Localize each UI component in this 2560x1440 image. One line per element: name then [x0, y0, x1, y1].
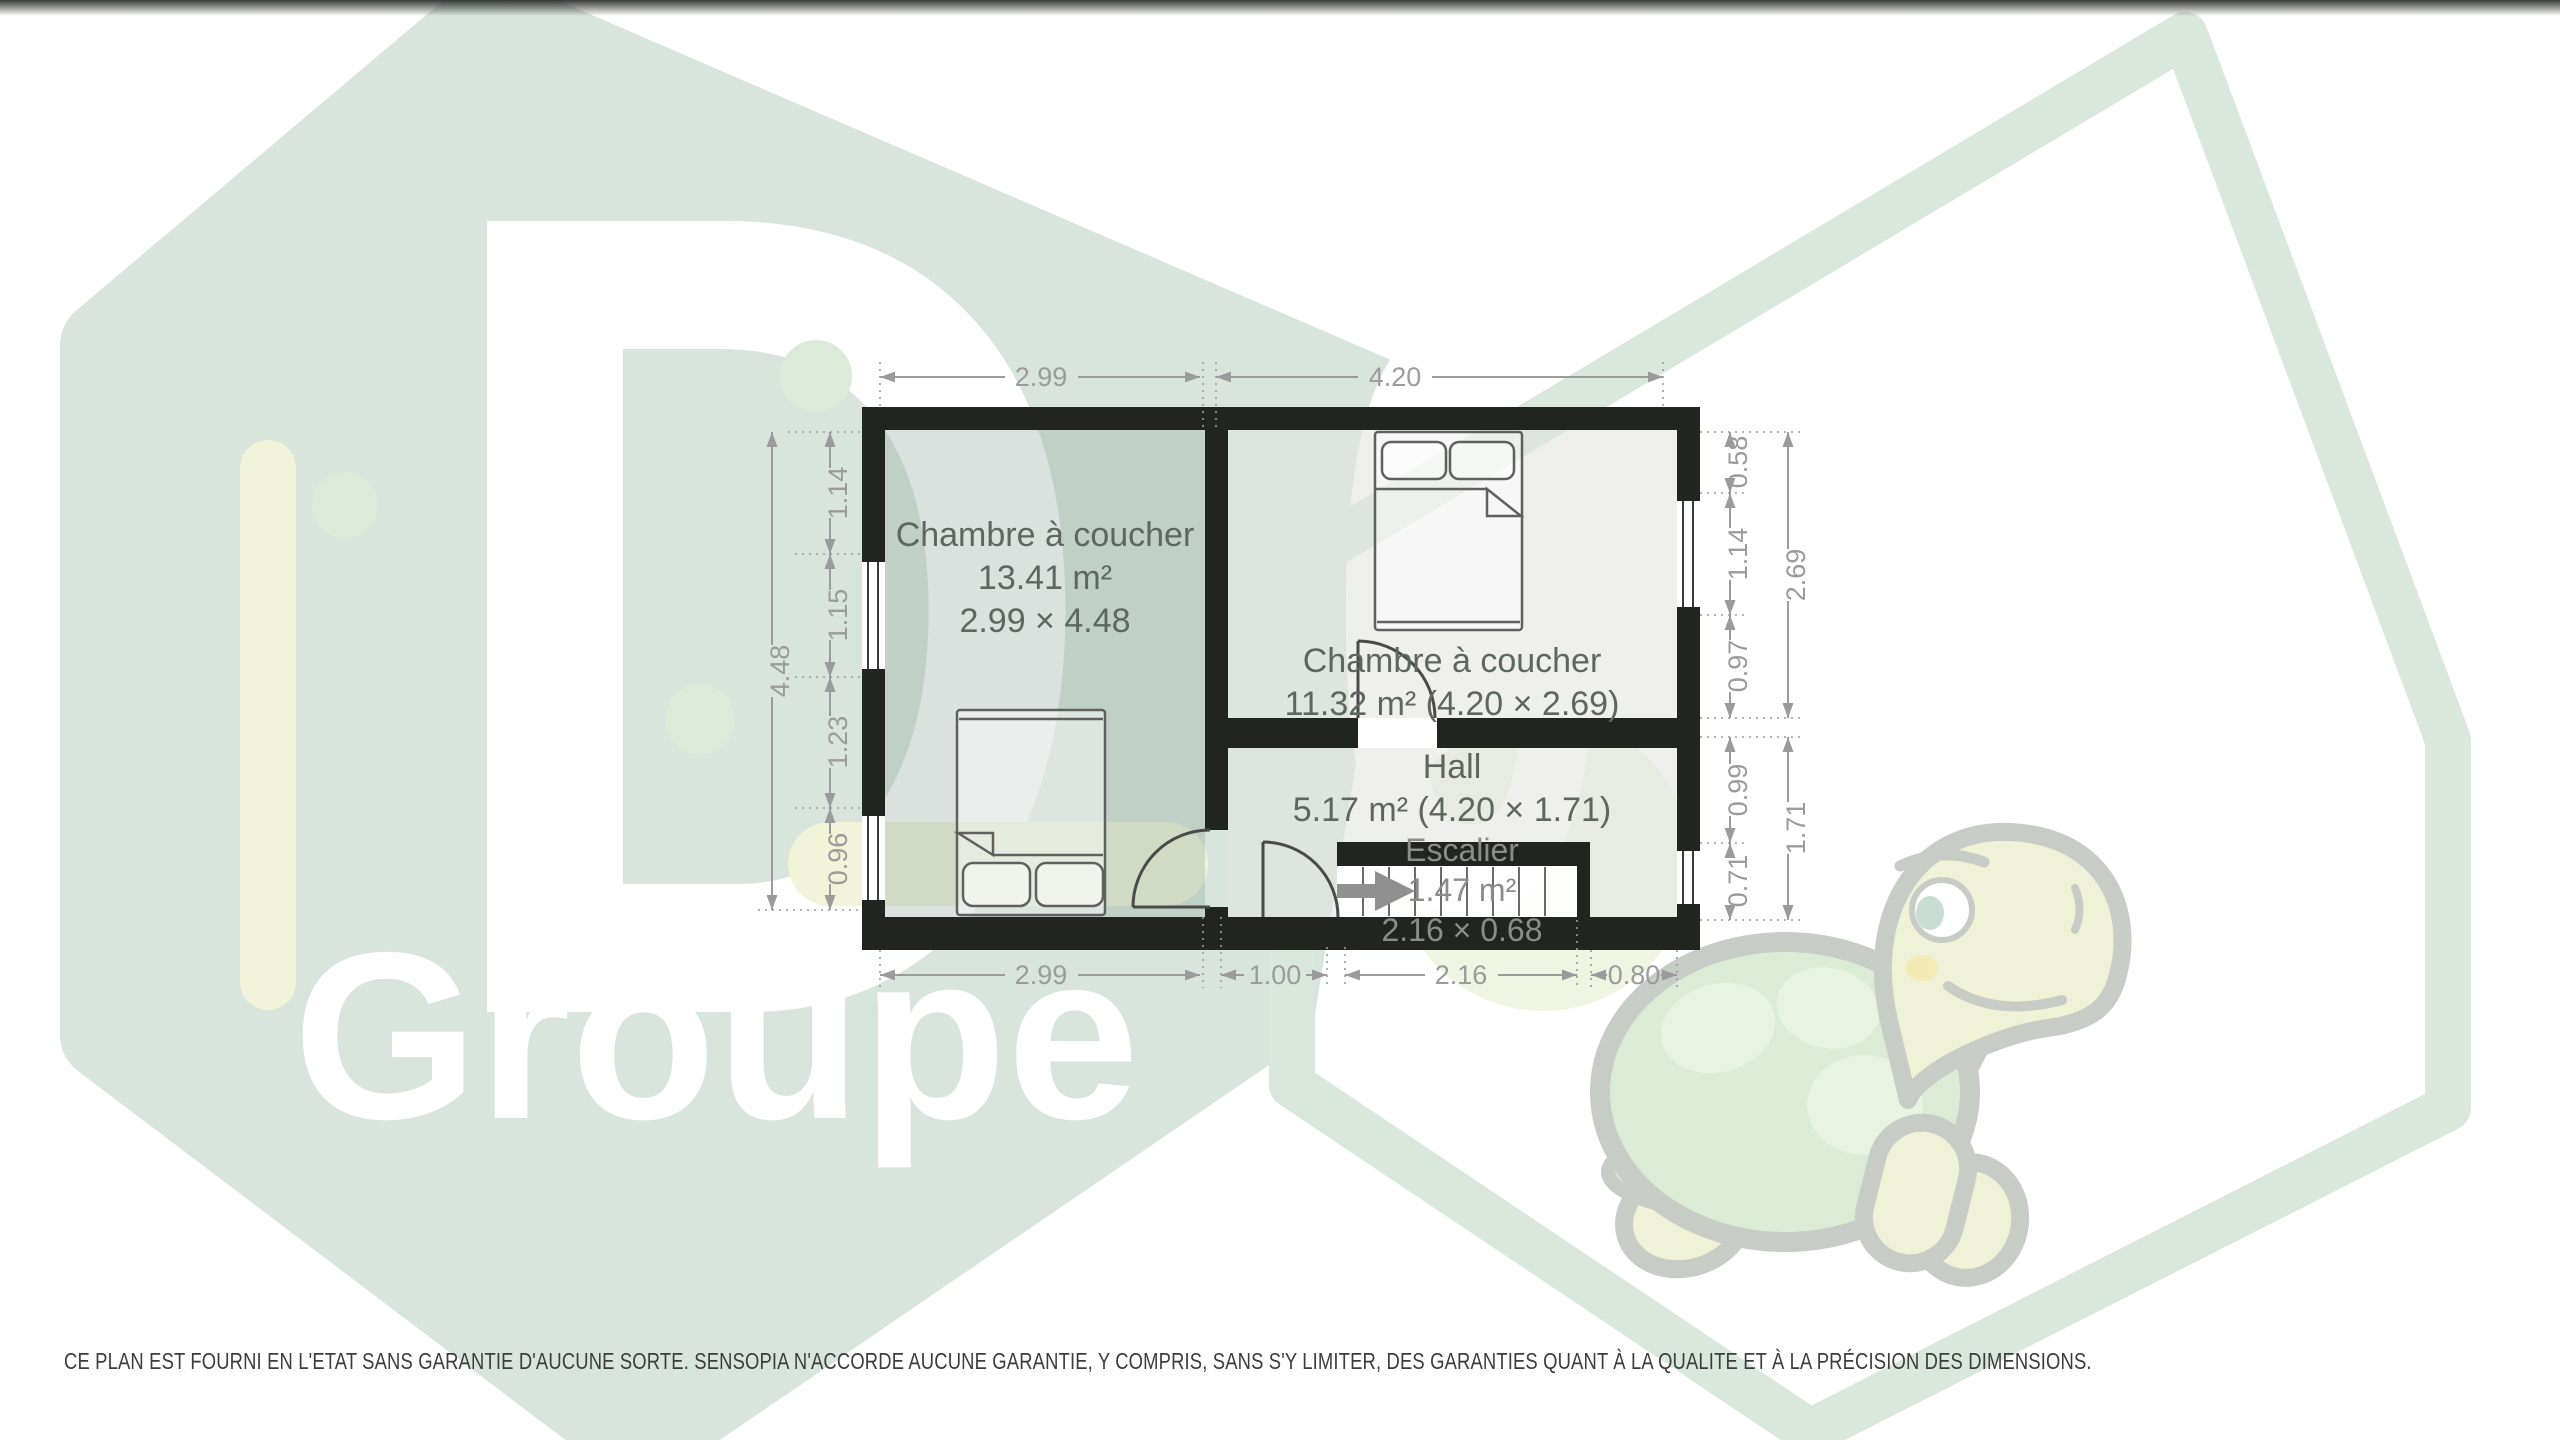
dim-value: 1.14: [823, 467, 853, 520]
top-shadow-bar: [0, 0, 2560, 16]
svg-text:Chambre à coucher: Chambre à coucher: [1303, 642, 1602, 680]
dim-value: 2.69: [1781, 549, 1811, 602]
svg-text:1.47 m²: 1.47 m²: [1408, 872, 1517, 908]
logo-dot: [312, 472, 378, 538]
dim-value: 0.97: [1723, 640, 1753, 693]
dim-value: 1.15: [823, 589, 853, 642]
dim-value: 1.23: [823, 716, 853, 769]
bed-double: [957, 710, 1105, 915]
floorplan-canvas: D Groupe 056: [0, 0, 2560, 1440]
dim-value: 4.20: [1369, 362, 1422, 392]
svg-text:Hall: Hall: [1423, 748, 1482, 786]
dim-value: 0.80: [1608, 960, 1661, 990]
svg-text:13.41 m²: 13.41 m²: [978, 559, 1112, 597]
svg-text:2.16 × 0.68: 2.16 × 0.68: [1381, 912, 1542, 948]
dim-value: 0.71: [1723, 855, 1753, 908]
window: [1677, 843, 1700, 912]
svg-text:Chambre à coucher: Chambre à coucher: [896, 516, 1195, 554]
turtle-eye-crease: [2075, 888, 2080, 930]
svg-text:5.17 m² (4.20 × 1.71): 5.17 m² (4.20 × 1.71): [1293, 791, 1611, 829]
dim-value: 2.99: [1015, 960, 1068, 990]
logo-dot: [665, 684, 735, 754]
svg-text:Escalier: Escalier: [1405, 832, 1519, 868]
dim-value: 0.58: [1723, 436, 1753, 489]
turtle-pupil: [1916, 896, 1944, 930]
dim-value: 1.00: [1249, 960, 1302, 990]
turtle-cheek: [1906, 955, 1938, 981]
svg-text:11.32 m² (4.20 × 2.69): 11.32 m² (4.20 × 2.69): [1285, 685, 1620, 723]
svg-text:2.99 × 4.48: 2.99 × 4.48: [959, 602, 1130, 640]
window: [862, 808, 885, 908]
window: [862, 554, 885, 677]
window: [1677, 493, 1700, 615]
dim-value: 4.48: [765, 645, 795, 698]
logo-dot: [780, 340, 852, 412]
dim-value: 2.99: [1015, 362, 1068, 392]
dim-value: 1.14: [1723, 528, 1753, 581]
dim-value: 1.71: [1781, 802, 1811, 855]
dim-value: 0.96: [823, 833, 853, 886]
disclaimer-text: CE PLAN EST FOURNI EN L'ETAT SANS GARANT…: [64, 1348, 2092, 1375]
bed-double: [1375, 432, 1522, 630]
dim-value: 0.99: [1723, 764, 1753, 817]
dim-value: 2.16: [1435, 960, 1488, 990]
floorplan: 2.99 4.20 2.99 1.00 2.16 0.80 1.14 1.15 …: [758, 362, 1811, 990]
floorplan-page: D Groupe 056: [0, 0, 2560, 1440]
yellow-stripe: [240, 440, 296, 1010]
